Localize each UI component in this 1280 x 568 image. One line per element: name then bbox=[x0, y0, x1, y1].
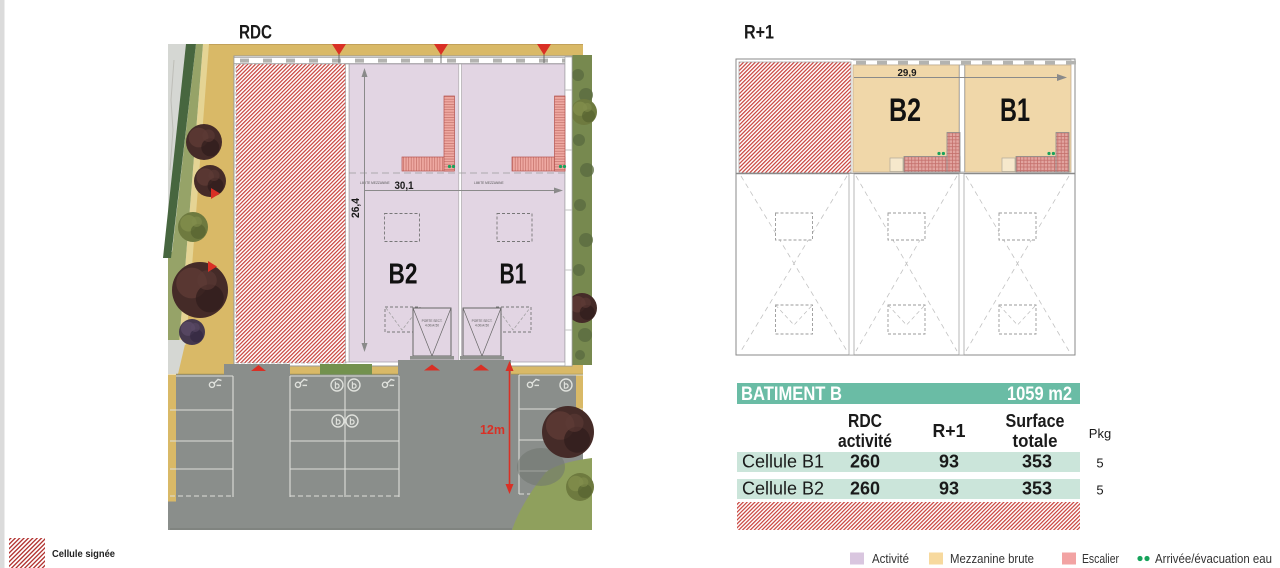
svg-text:Pkg: Pkg bbox=[1089, 426, 1111, 441]
svg-text:260: 260 bbox=[850, 452, 880, 472]
svg-text:93: 93 bbox=[939, 479, 959, 499]
svg-text:RDC: RDC bbox=[239, 22, 272, 44]
svg-text:B2: B2 bbox=[389, 259, 418, 291]
svg-text:12m: 12m bbox=[480, 423, 505, 437]
svg-text:353: 353 bbox=[1022, 479, 1052, 499]
svg-text:4.00x4.50: 4.00x4.50 bbox=[425, 324, 439, 328]
svg-text:PORTE SECT.: PORTE SECT. bbox=[422, 319, 443, 323]
svg-text:Surface: Surface bbox=[1006, 410, 1065, 431]
svg-text:RDC: RDC bbox=[848, 410, 882, 431]
svg-text:PORTE SECT.: PORTE SECT. bbox=[472, 319, 493, 323]
svg-text:B2: B2 bbox=[889, 92, 921, 128]
svg-text:Arrivée/évacuation eau: Arrivée/évacuation eau bbox=[1155, 552, 1272, 566]
svg-text:93: 93 bbox=[939, 452, 959, 472]
svg-text:Activité: Activité bbox=[872, 552, 909, 566]
svg-text:Escalier: Escalier bbox=[1082, 552, 1119, 566]
svg-text:totale: totale bbox=[1013, 430, 1058, 451]
svg-text:B1: B1 bbox=[500, 259, 527, 291]
svg-text:Mezzanine brute: Mezzanine brute bbox=[950, 552, 1034, 566]
svg-text:5: 5 bbox=[1096, 483, 1103, 498]
svg-text:4.00x4.50: 4.00x4.50 bbox=[475, 324, 489, 328]
svg-text:activité: activité bbox=[838, 431, 892, 451]
svg-text:Cellule B1: Cellule B1 bbox=[742, 452, 824, 472]
svg-text:R+1: R+1 bbox=[744, 22, 774, 44]
svg-text:260: 260 bbox=[850, 479, 880, 499]
svg-text:LIMITE MEZZANINE: LIMITE MEZZANINE bbox=[474, 181, 504, 185]
svg-text:R+1: R+1 bbox=[933, 420, 966, 441]
svg-text:353: 353 bbox=[1022, 452, 1052, 472]
svg-text:5: 5 bbox=[1096, 456, 1103, 471]
svg-text:Cellule B2: Cellule B2 bbox=[742, 479, 824, 499]
svg-text:30,1: 30,1 bbox=[395, 180, 414, 192]
svg-text:Cellule signée: Cellule signée bbox=[52, 548, 115, 560]
svg-text:1059 m2: 1059 m2 bbox=[1007, 384, 1072, 405]
svg-text:26,4: 26,4 bbox=[350, 197, 362, 218]
svg-text:BATIMENT B: BATIMENT B bbox=[741, 384, 842, 405]
svg-text:B1: B1 bbox=[1000, 92, 1030, 128]
